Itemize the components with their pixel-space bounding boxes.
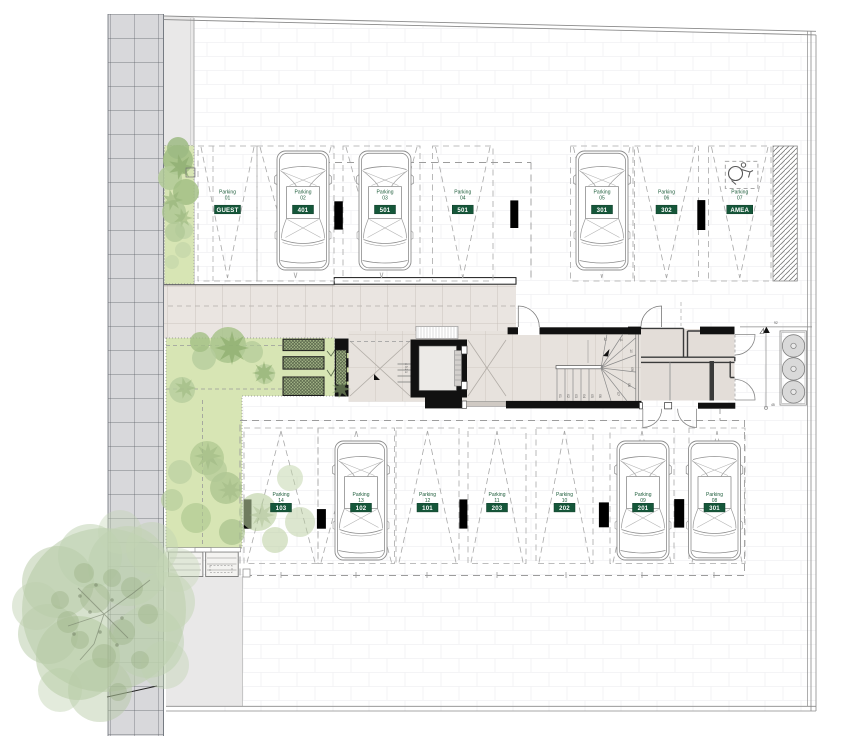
svg-text:45: 45 [771, 403, 775, 407]
svg-text:103: 103 [276, 505, 287, 512]
svg-text:02: 02 [300, 196, 306, 202]
svg-text:03: 03 [574, 394, 578, 398]
svg-text:92: 92 [774, 321, 778, 325]
svg-text:GUEST: GUEST [217, 207, 239, 214]
svg-text:02: 02 [566, 394, 570, 398]
svg-text:Parking: Parking [594, 189, 611, 195]
svg-text:03: 03 [382, 196, 388, 202]
svg-text:Parking: Parking [219, 189, 236, 195]
svg-text:08: 08 [627, 383, 631, 387]
svg-text:501: 501 [457, 207, 468, 214]
svg-text:10: 10 [629, 349, 633, 353]
svg-text:05: 05 [599, 196, 605, 202]
svg-text:01: 01 [558, 394, 562, 398]
svg-text:101: 101 [422, 505, 433, 512]
svg-text:501: 501 [380, 207, 391, 214]
svg-text:401: 401 [298, 207, 309, 214]
svg-text:Parking: Parking [658, 189, 675, 195]
svg-text:Parking: Parking [454, 189, 471, 195]
svg-text:04: 04 [582, 394, 586, 398]
svg-text:Parking: Parking [377, 189, 394, 195]
svg-text:12: 12 [603, 337, 607, 341]
svg-text:Parking: Parking [295, 189, 312, 195]
svg-text:302: 302 [661, 207, 672, 214]
svg-text:07: 07 [737, 196, 743, 202]
svg-text:4 3 2 1: 4 3 2 1 [404, 363, 408, 373]
svg-text:301: 301 [597, 207, 608, 214]
svg-text:11: 11 [619, 338, 623, 342]
svg-text:05: 05 [590, 394, 594, 398]
svg-text:01: 01 [225, 196, 231, 202]
svg-text:06: 06 [598, 394, 602, 398]
svg-text:203: 203 [492, 505, 503, 512]
svg-text:Parking: Parking [731, 189, 748, 195]
svg-text:06: 06 [664, 196, 670, 202]
svg-text:04: 04 [460, 196, 466, 202]
svg-text:07: 07 [616, 392, 620, 396]
svg-text:102: 102 [356, 505, 367, 512]
svg-text:202: 202 [559, 505, 570, 512]
svg-text:201: 201 [638, 505, 649, 512]
svg-text:301: 301 [709, 505, 720, 512]
svg-text:AMEA: AMEA [730, 207, 749, 214]
svg-text:09: 09 [630, 367, 634, 371]
